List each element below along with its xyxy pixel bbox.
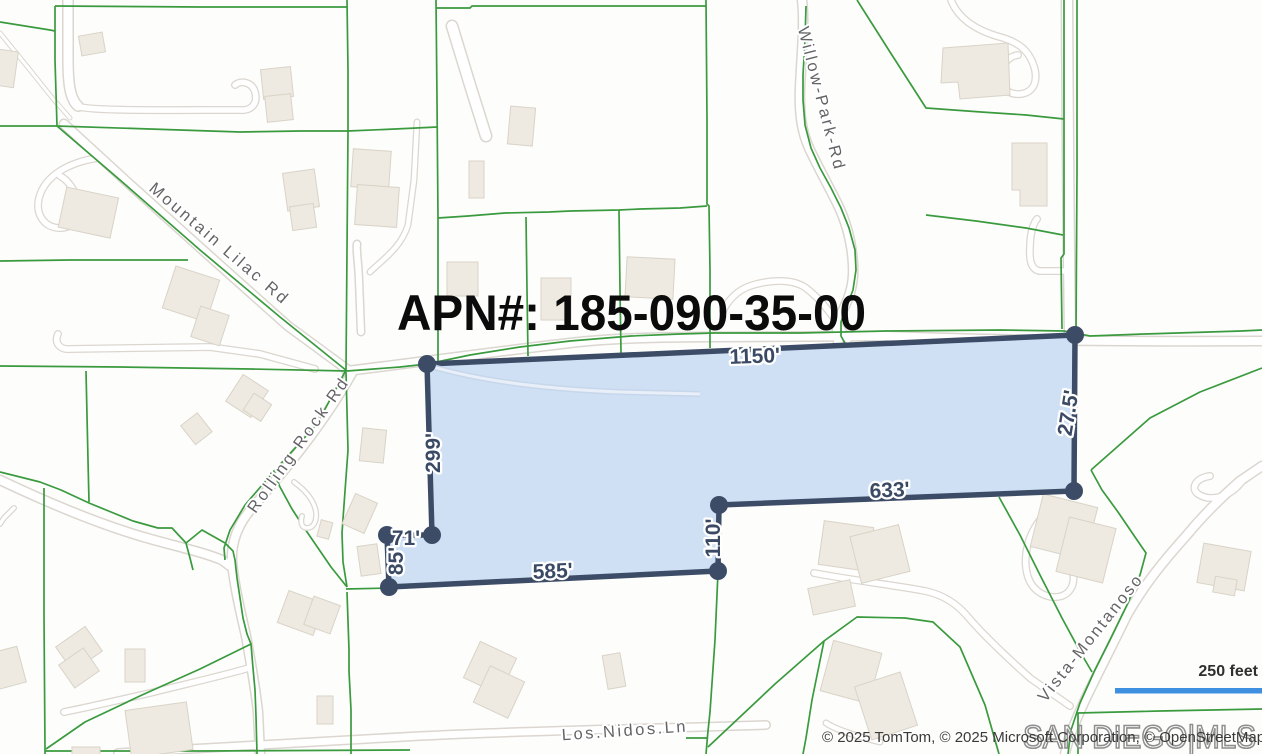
svg-text:585': 585'	[532, 559, 573, 584]
svg-text:1150': 1150'	[729, 344, 780, 369]
svg-text:© 2025 TomTom, © 2025 Microsof: © 2025 TomTom, © 2025 Microsoft Corporat…	[822, 729, 1262, 746]
svg-text:110': 110'	[702, 519, 725, 558]
svg-text:85': 85'	[385, 547, 408, 575]
svg-text:633': 633'	[869, 478, 910, 503]
svg-text:APN#: 185-090-35-00: APN#: 185-090-35-00	[397, 285, 866, 341]
svg-text:299': 299'	[422, 433, 445, 473]
svg-text:71': 71'	[392, 527, 420, 550]
svg-text:250 feet: 250 feet	[1198, 663, 1258, 680]
